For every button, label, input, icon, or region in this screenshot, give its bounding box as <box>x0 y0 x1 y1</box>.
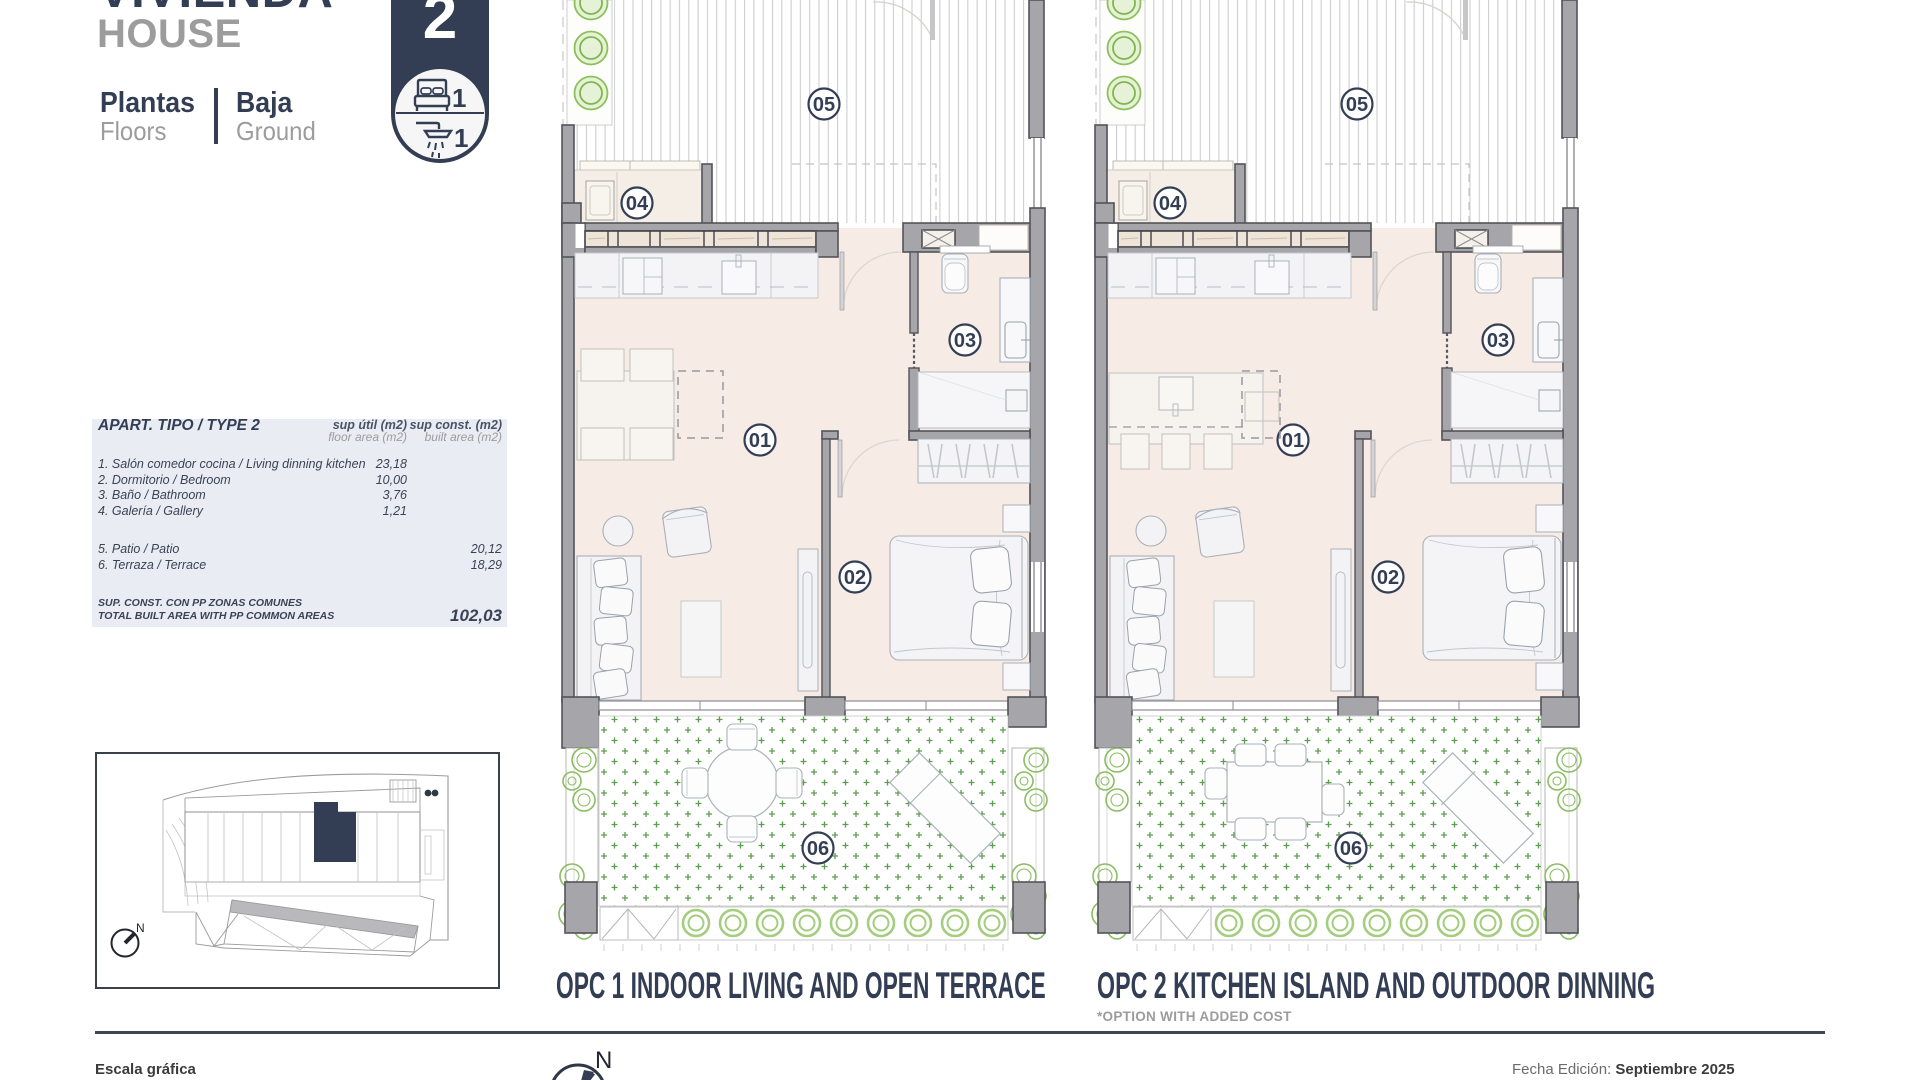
svg-text:N: N <box>136 921 145 935</box>
svg-text:05: 05 <box>1346 94 1368 116</box>
svg-text:02: 02 <box>1377 567 1399 589</box>
svg-text:01: 01 <box>1282 430 1304 452</box>
svg-text:03: 03 <box>1487 330 1509 352</box>
svg-text:06: 06 <box>807 838 829 860</box>
svg-text:05: 05 <box>813 94 835 116</box>
svg-text:03: 03 <box>954 330 976 352</box>
svg-text:04: 04 <box>1159 193 1182 215</box>
svg-text:06: 06 <box>1340 838 1362 860</box>
svg-text:02: 02 <box>844 567 866 589</box>
svg-text:04: 04 <box>626 193 649 215</box>
svg-text:N: N <box>595 1047 612 1074</box>
svg-text:01: 01 <box>749 430 771 452</box>
